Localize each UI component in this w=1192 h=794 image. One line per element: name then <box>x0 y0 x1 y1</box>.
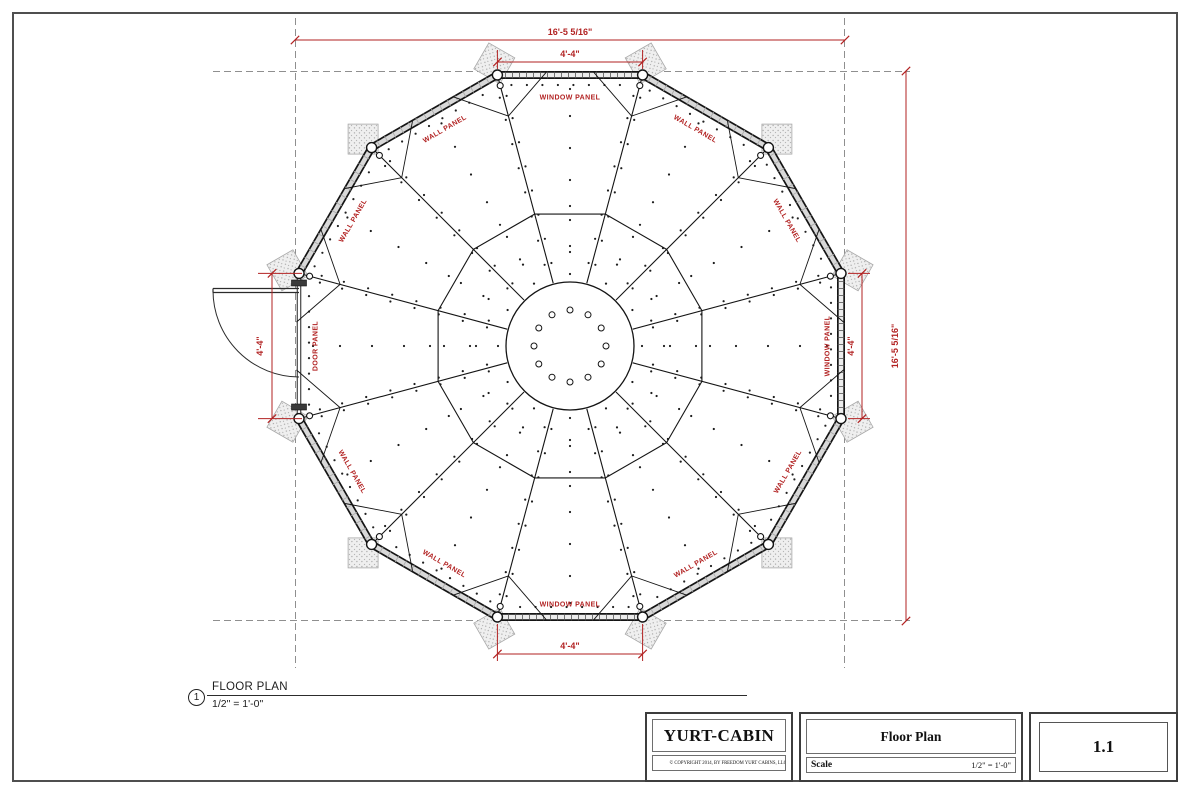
panel-label-bottom: WINDOW PANEL <box>540 602 601 609</box>
window-panel-band <box>497 72 642 79</box>
view-title-underline <box>207 695 747 696</box>
scale-value: 1/2" = 1'-0" <box>971 760 1011 770</box>
svg-text:16'-5 5/16": 16'-5 5/16" <box>548 27 592 37</box>
svg-text:16'-5 5/16": 16'-5 5/16" <box>890 324 900 368</box>
svg-text:4'-4": 4'-4" <box>255 336 265 355</box>
floor-plan-drawing: 16'-5 5/16"4'-4"16'-5 5/16"4'-4"4'-4"4'-… <box>0 0 1192 794</box>
scale-label: Scale <box>811 760 832 770</box>
door-panel-band <box>292 273 307 418</box>
titleblock-title-section: Floor Plan Scale 1/2" = 1'-0" <box>799 712 1023 782</box>
sheet-number: 1.1 <box>1039 722 1168 772</box>
view-title-text: FLOOR PLAN <box>212 681 288 693</box>
window-panel-band <box>497 614 642 621</box>
copyright-text: © COPYRIGHT 2014, BY FREEDOM YURT CABINS… <box>652 755 786 771</box>
drawing-title: Floor Plan <box>806 719 1016 754</box>
company-name: YURT-CABIN <box>652 719 786 752</box>
svg-text:4'-4": 4'-4" <box>846 336 856 355</box>
titleblock-number-section: 1.1 <box>1029 712 1178 782</box>
svg-text:4'-4": 4'-4" <box>560 641 579 651</box>
panel-label-left: DOOR PANEL <box>313 321 320 371</box>
panel-label-top: WINDOW PANEL <box>540 95 601 102</box>
panel-label-right: WINDOW PANEL <box>825 315 832 376</box>
view-number-bubble: 1 <box>188 689 205 706</box>
door-swing <box>213 289 299 378</box>
scale-row: Scale 1/2" = 1'-0" <box>806 757 1016 773</box>
view-scale-text: 1/2" = 1'-0" <box>212 698 263 710</box>
window-panel-band <box>838 273 845 418</box>
copyright-span: © COPYRIGHT 2014, BY FREEDOM YURT CABINS… <box>670 758 786 770</box>
center-ring <box>506 282 634 410</box>
drawing-sheet: 16'-5 5/16"4'-4"16'-5 5/16"4'-4"4'-4"4'-… <box>0 0 1192 794</box>
titleblock-company-section: YURT-CABIN © COPYRIGHT 2014, BY FREEDOM … <box>645 712 793 782</box>
svg-text:4'-4": 4'-4" <box>560 49 579 59</box>
